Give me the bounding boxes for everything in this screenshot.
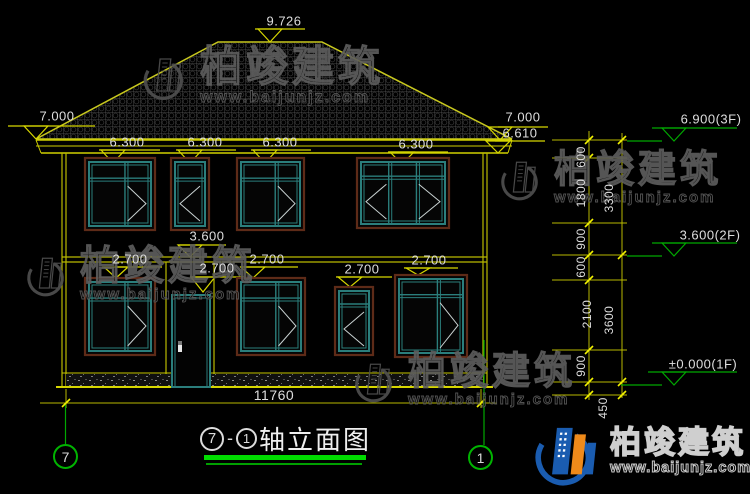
brand-watermark-icon: [496, 150, 548, 208]
watermark: 柏竣建筑 www.baijunjz.com: [138, 46, 384, 108]
watermark: 柏竣建筑 www.baijunjz.com: [496, 150, 722, 208]
watermark-url: www.baijunjz.com: [554, 189, 722, 208]
watermark: 柏竣建筑 www.baijunjz.com: [22, 246, 256, 305]
axis-bubble-1: 1: [468, 445, 493, 470]
watermark-name: 柏竣建筑: [80, 246, 256, 286]
watermark-url: www.baijunjz.com: [80, 286, 256, 305]
brand-watermark-icon: [350, 352, 402, 410]
brand-watermark-icon: [138, 46, 194, 108]
watermark-url: www.baijunjz.com: [200, 88, 384, 108]
axis-bubble-7: 7: [53, 444, 78, 469]
watermark: 柏竣建筑 www.baijunjz.com: [350, 352, 576, 410]
watermark-name: 柏竣建筑: [554, 151, 722, 189]
brand-watermark-icon: [22, 246, 74, 304]
brand-logo: 柏竣建筑 www.baijunjz.com: [528, 420, 750, 486]
watermark-url: www.baijunjz.com: [408, 391, 576, 410]
brand-url: www.baijunjz.com: [610, 458, 750, 478]
title-separator: -: [227, 428, 233, 449]
brand-logo-icon: [528, 420, 606, 486]
title-axis-to-bubble: 1: [236, 428, 257, 449]
eave-fascia: [36, 140, 512, 153]
watermark-name: 柏竣建筑: [408, 353, 576, 391]
title-underline-thin: [206, 463, 362, 465]
watermark-name: 柏竣建筑: [200, 46, 384, 88]
title-text: 轴立面图: [259, 420, 371, 457]
drawing-title: 7 - 1 轴立面图: [200, 420, 371, 457]
title-axis-from-bubble: 7: [200, 427, 224, 451]
cad-canvas: 柏竣建筑 www.baijunjz.com 柏竣建筑 www.baijunjz.…: [0, 0, 750, 494]
brand-name: 柏竣建筑: [610, 427, 750, 458]
title-underline-thick: [204, 455, 366, 460]
